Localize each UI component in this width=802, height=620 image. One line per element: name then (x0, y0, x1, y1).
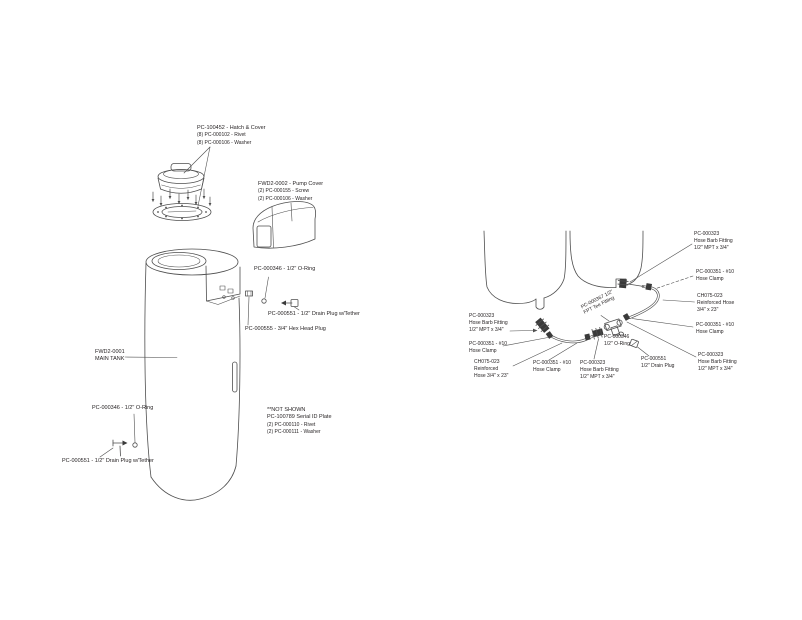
label-clamp-mid: PC-000351 - #10 Hose Clamp (533, 360, 571, 374)
label-drain-plug-side: PC-000551 - 1/2" Drain Plug w/Tether (62, 458, 154, 465)
part-detail: (2) PC-000106 - Washer (258, 196, 323, 203)
note-title: **NOT SHOWN (267, 407, 332, 414)
part-detail: (8) PC-000106 - Washer (197, 140, 265, 147)
part-name: Hose Barb Fitting (694, 238, 733, 245)
label-clamp-left: PC-000351 - #10 Hose Clamp (469, 341, 507, 355)
part-number: PC-000551 (641, 356, 674, 363)
label-drain-plug-top: PC-000551 - 1/2" Drain Plug w/Tether (268, 311, 360, 318)
label-main-tank: FWD2-0001 MAIN TANK (95, 349, 125, 364)
label-hatch-cover: PC-100452 - Hatch & Cover (8) PC-000102 … (197, 125, 265, 147)
part-spec: 1/2" MPT x 3/4" (698, 366, 737, 373)
tank-bottoms-drawing (484, 231, 643, 309)
pump-cover-drawing (253, 201, 316, 248)
part-number: PC-000323 (694, 231, 733, 238)
label-not-shown: **NOT SHOWN PC-100789 Serial ID Plate (2… (267, 407, 332, 437)
label-barb-left: PC-000323 Hose Barb Fitting 1/2" MPT x 3… (469, 313, 508, 334)
part-spec: 1/2" MPT x 3/4" (694, 245, 733, 252)
part-name: Hose Barb Fitting (698, 359, 737, 366)
part-name: Hose Clamp (533, 367, 571, 374)
part-number: PC-000351 - #10 (696, 322, 734, 329)
label-hose-right: CH075-023 Reinforced Hose 3/4" x 23" (697, 293, 734, 314)
hatch-cover-drawing (158, 164, 204, 194)
part-number: PC-000351 - #10 (533, 360, 571, 367)
label-hex-head-plug: PC-000555 - 3/4" Hex Head Plug (245, 326, 326, 333)
part-name: 1/2" Drain Plug (641, 363, 674, 370)
part-name: Hose Clamp (469, 348, 507, 355)
part-number: CH075-023 (697, 293, 734, 300)
part-name: 1/2" O-Ring (604, 341, 630, 348)
part-number: FWD2-0001 (95, 349, 125, 356)
part-number: PC-000346 - 1/2" O-Ring (92, 405, 153, 412)
part-detail: (2) PC-000155 - Screw (258, 188, 323, 195)
part-number: PC-000346 (604, 334, 630, 341)
label-hose-left: CH075-023 Reinforced Hose 3/4" x 23" (474, 359, 508, 380)
part-number: PC-100452 - Hatch & Cover (197, 125, 265, 132)
label-barb-top-right: PC-000323 Hose Barb Fitting 1/2" MPT x 3… (694, 231, 733, 252)
hose-assembly-drawing (534, 279, 658, 348)
part-number: PC-000346 - 1/2" O-Ring (254, 266, 315, 273)
label-oring-side: PC-000346 - 1/2" O-Ring (92, 405, 153, 412)
label-drain-plug-right: PC-000551 1/2" Drain Plug (641, 356, 674, 370)
part-name: MAIN TANK (95, 356, 125, 363)
main-tank-drawing (145, 249, 240, 500)
part-number: PC-000351 - #10 (696, 269, 734, 276)
part-name: Hose Barb Fitting (580, 367, 619, 374)
label-barb-mid: PC-000323 Hose Barb Fitting 1/2" MPT x 3… (580, 360, 619, 381)
part-number: PC-000323 (580, 360, 619, 367)
part-number: CH075-023 (474, 359, 508, 366)
part-detail: (2) PC-000110 - Rivet (267, 422, 332, 429)
diagram-linework (0, 0, 802, 620)
label-oring-top: PC-000346 - 1/2" O-Ring (254, 266, 315, 273)
part-spec: 3/4" x 23" (697, 307, 734, 314)
part-number: PC-000555 - 3/4" Hex Head Plug (245, 326, 326, 333)
part-number: PC-000351 - #10 (469, 341, 507, 348)
part-number: PC-000323 (698, 352, 737, 359)
part-number: PC-000323 (469, 313, 508, 320)
flange-ring-drawing (153, 204, 211, 221)
part-name: Hose Clamp (696, 329, 734, 336)
label-oring-mid: PC-000346 1/2" O-Ring (604, 334, 630, 348)
label-barb-bottom-right: PC-000323 Hose Barb Fitting 1/2" MPT x 3… (698, 352, 737, 373)
part-number: PC-100789 Serial ID Plate (267, 414, 332, 421)
part-name: Hose Clamp (696, 276, 734, 283)
part-number: PC-000551 - 1/2" Drain Plug w/Tether (62, 458, 154, 465)
label-pump-cover: FWD2-0002 - Pump Cover (2) PC-000155 - S… (258, 181, 323, 203)
part-detail: (8) PC-000102 - Rivet (197, 132, 265, 139)
parts-diagram-page: PC-100452 - Hatch & Cover (8) PC-000102 … (0, 0, 802, 620)
part-spec: Hose 3/4" x 23" (474, 373, 508, 380)
label-clamp-right: PC-000351 - #10 Hose Clamp (696, 322, 734, 336)
part-number: FWD2-0002 - Pump Cover (258, 181, 323, 188)
part-spec: 1/2" MPT x 3/4" (469, 327, 508, 334)
part-name: Reinforced Hose (697, 300, 734, 307)
part-name: Hose Barb Fitting (469, 320, 508, 327)
part-spec: 1/2" MPT x 3/4" (580, 374, 619, 381)
label-clamp-top-right: PC-000351 - #10 Hose Clamp (696, 269, 734, 283)
part-detail: (2) PC-000111 - Washer (267, 429, 332, 436)
part-number: PC-000551 - 1/2" Drain Plug w/Tether (268, 311, 360, 318)
part-name: Reinforced (474, 366, 508, 373)
